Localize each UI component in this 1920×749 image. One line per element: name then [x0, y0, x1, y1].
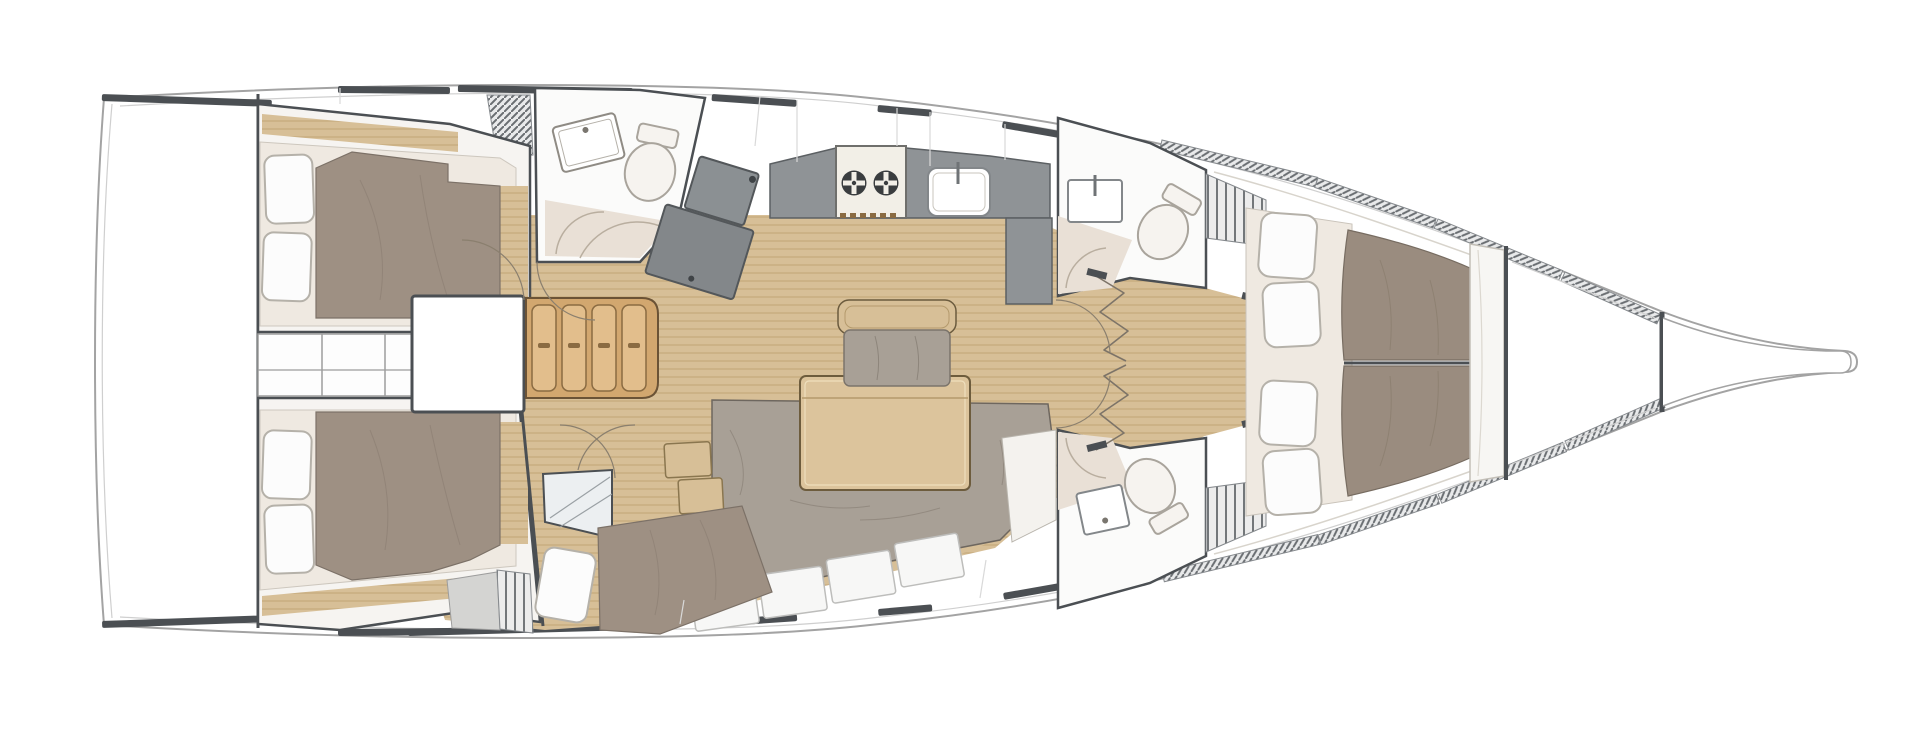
side-table: [678, 478, 724, 514]
pillow: [1259, 380, 1318, 447]
bed-mattress: [316, 412, 500, 580]
pillow: [1262, 448, 1322, 516]
bowsprit: [1663, 318, 1851, 406]
pillow: [264, 154, 314, 224]
louvered-locker: [497, 570, 533, 633]
side-table: [664, 442, 712, 478]
pillow: [1258, 212, 1318, 280]
pillow: [262, 232, 312, 302]
sink: [1076, 484, 1130, 535]
mid-locker-row: [258, 334, 412, 396]
companionway-steps: [526, 298, 658, 398]
sink: [1068, 175, 1122, 222]
engine-compartment: [412, 296, 524, 412]
pillow: [1262, 281, 1321, 348]
floor-plan-canvas: [0, 0, 1920, 749]
galley-sink: [928, 162, 990, 216]
pillow: [262, 430, 312, 500]
stove: [836, 146, 906, 218]
burner: [874, 171, 899, 196]
pillow: [534, 546, 597, 624]
fwd-head-port: [1058, 118, 1207, 296]
pillow: [264, 504, 314, 574]
burner: [842, 171, 867, 196]
saloon-table: [800, 376, 970, 490]
armchair: [838, 300, 956, 386]
